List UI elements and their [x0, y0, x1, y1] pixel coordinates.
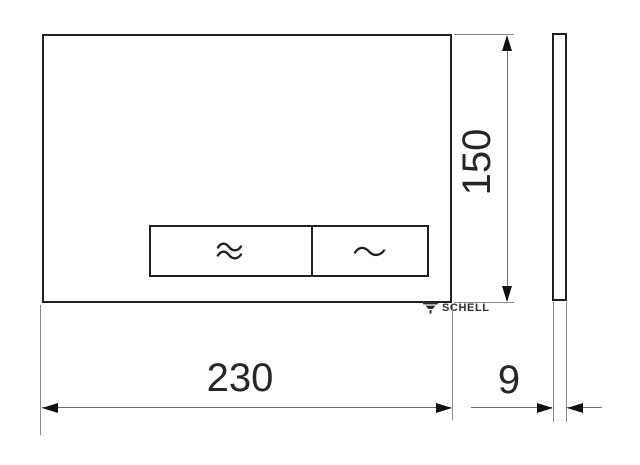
technical-drawing-canvas: SCHELL 150 230 9	[0, 0, 640, 465]
eco-flush-button	[311, 225, 429, 277]
arrow-right-inward-icon	[537, 403, 553, 413]
height-dimension-line	[507, 37, 508, 300]
depth-extension-line-left	[553, 302, 554, 422]
arrow-right-icon	[436, 403, 452, 413]
full-flush-button	[149, 225, 313, 277]
height-extension-line-bottom	[454, 302, 514, 303]
width-dimension-line	[42, 407, 451, 408]
arrow-left-icon	[42, 403, 58, 413]
width-extension-line-left	[40, 305, 41, 435]
width-dimension-label: 230	[190, 356, 290, 400]
arrow-left-inward-icon	[567, 403, 583, 413]
side-view-plate	[552, 33, 567, 301]
arrow-up-icon	[502, 35, 512, 51]
double-wave-icon	[214, 239, 248, 263]
single-wave-icon	[350, 242, 390, 260]
arrow-down-icon	[502, 286, 512, 302]
height-dimension-label: 150	[455, 107, 499, 217]
schell-funnel-icon	[423, 301, 438, 315]
width-extension-line-right	[452, 305, 453, 420]
depth-dimension-label: 9	[489, 358, 529, 402]
front-view-plate: SCHELL	[42, 34, 452, 303]
